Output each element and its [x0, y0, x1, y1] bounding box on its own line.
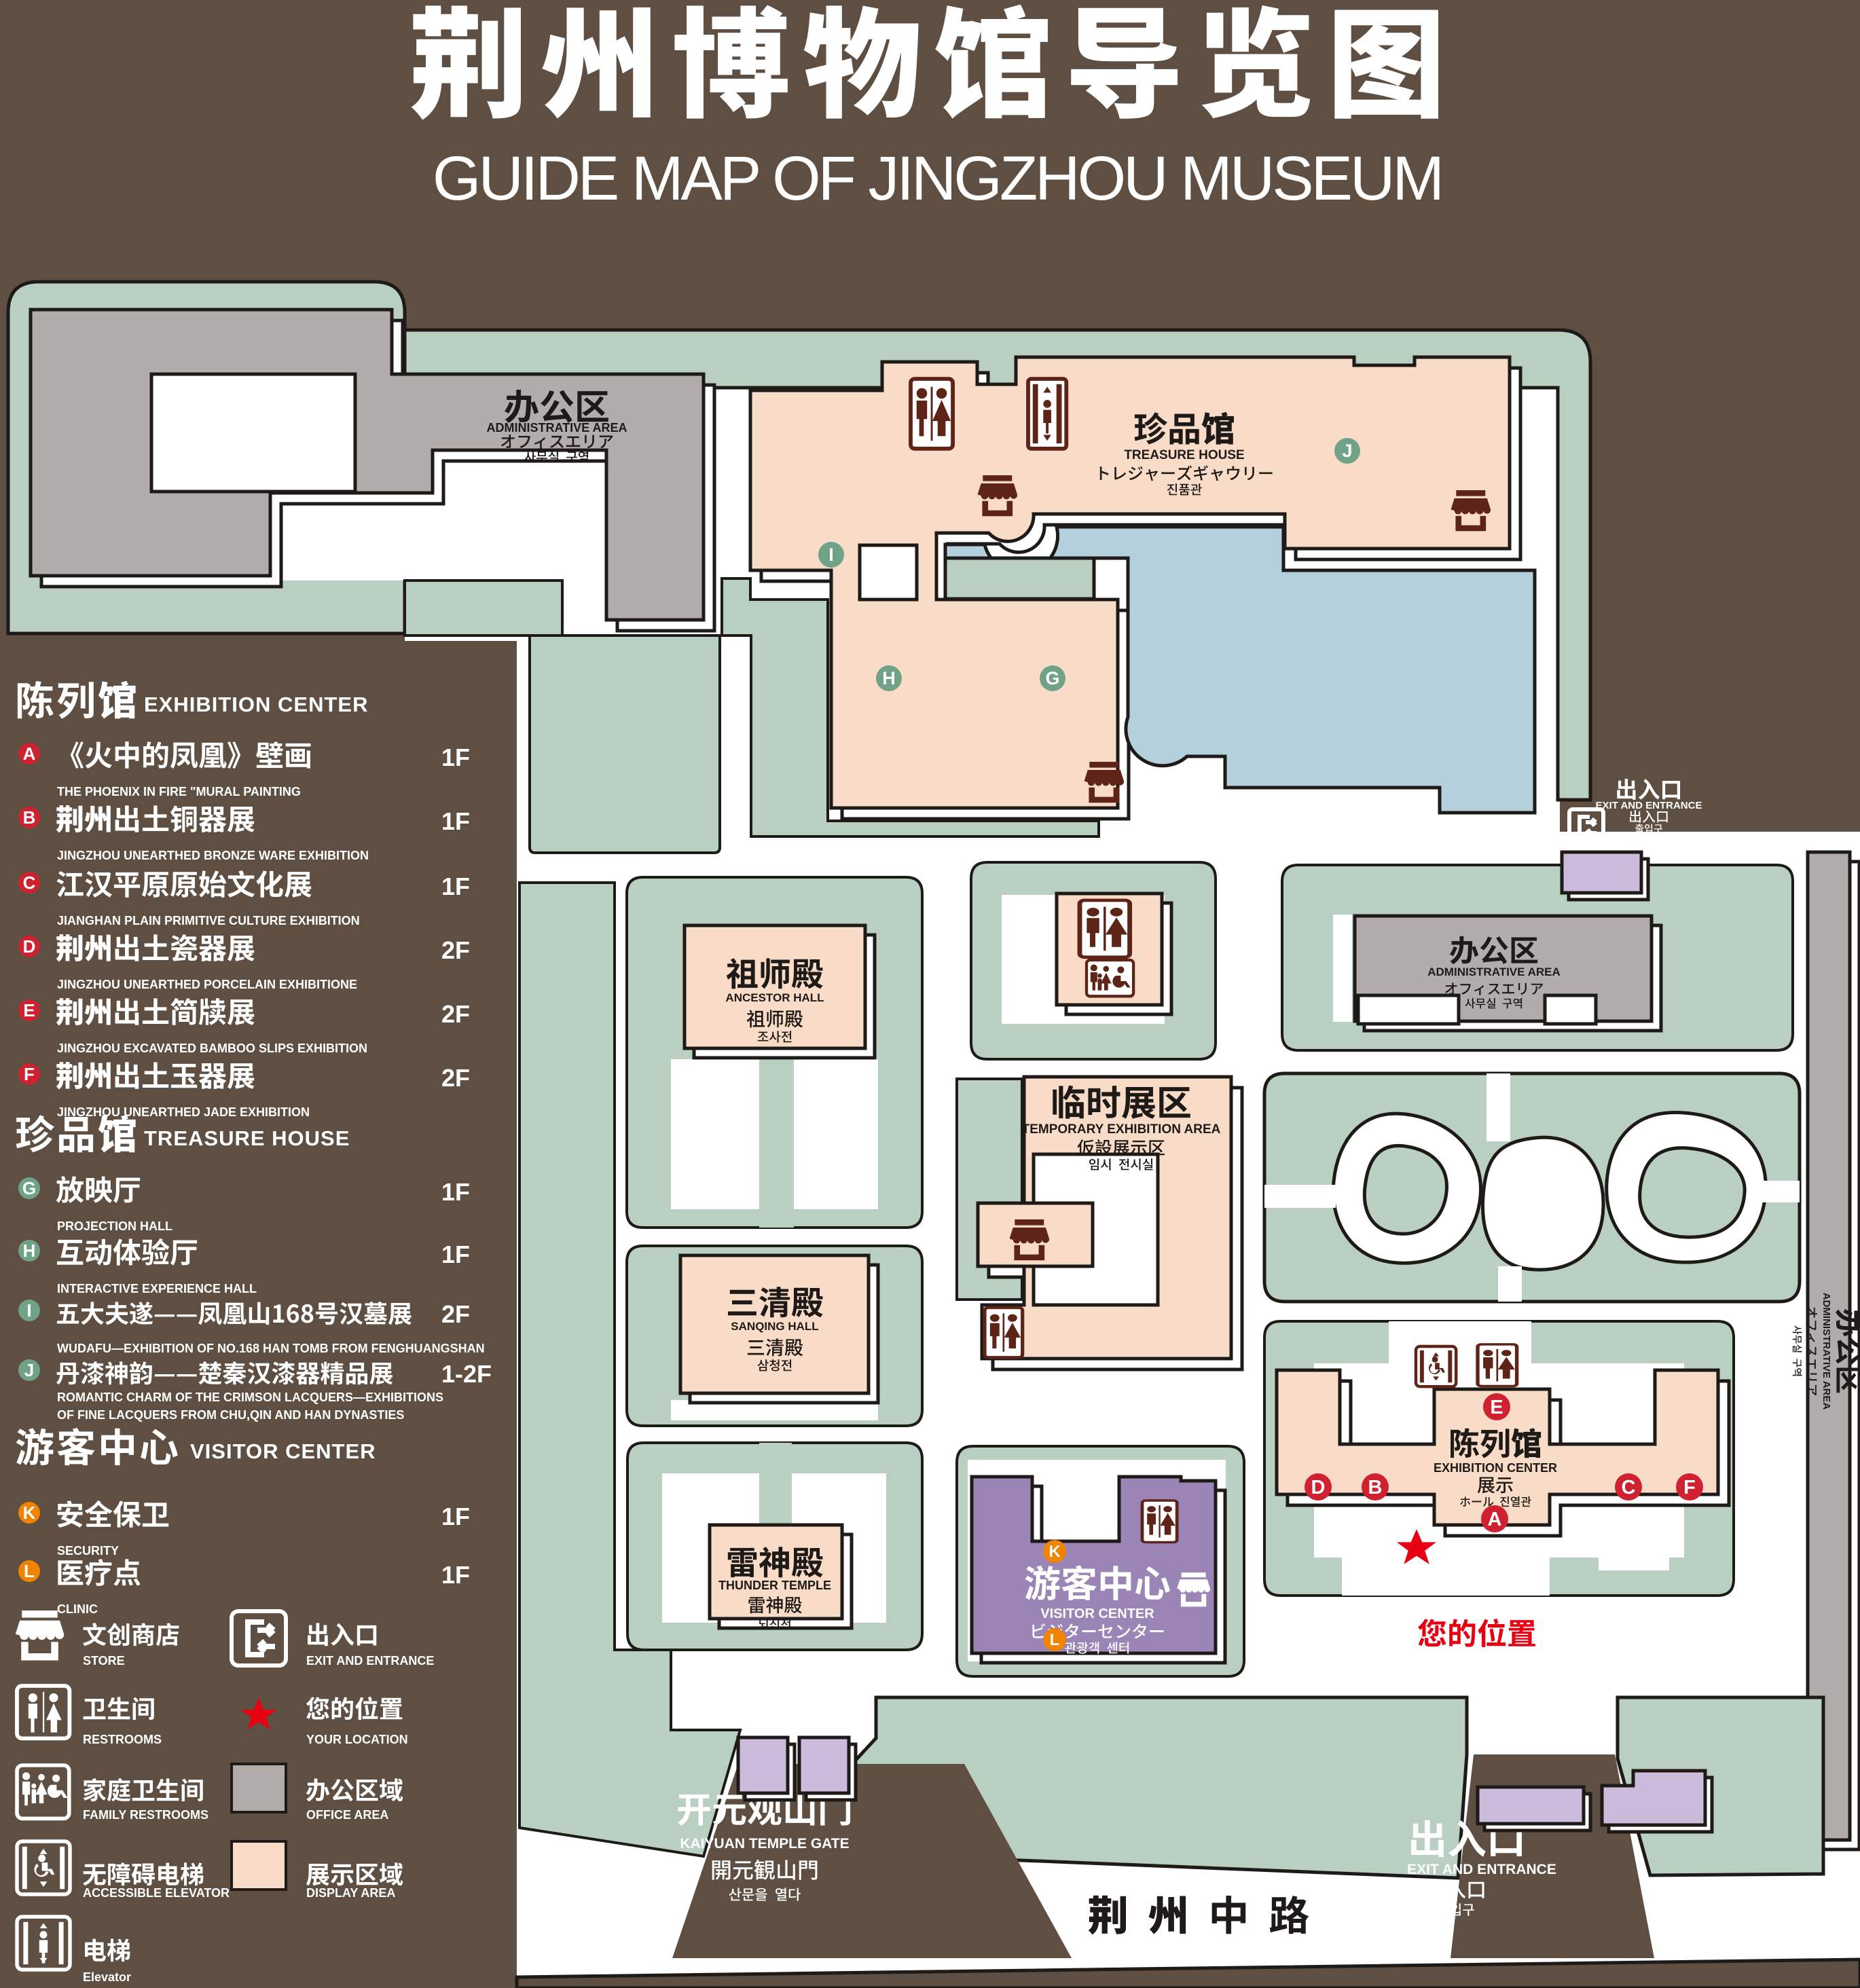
- svg-text:B: B: [23, 807, 36, 828]
- svg-text:C: C: [23, 872, 36, 893]
- svg-text:J: J: [24, 1360, 34, 1380]
- svg-text:2F: 2F: [441, 1300, 470, 1328]
- svg-text:CLINIC: CLINIC: [57, 1602, 98, 1616]
- svg-text:EXHIBITION CENTER: EXHIBITION CENTER: [144, 693, 368, 716]
- svg-text:J: J: [1342, 441, 1352, 461]
- svg-text:JINGZHOU UNEARTHED JADE EXHIBI: JINGZHOU UNEARTHED JADE EXHIBITION: [57, 1105, 310, 1119]
- svg-text:H: H: [882, 668, 896, 688]
- svg-text:WUDAFU—EXHIBITION OF NO.168 HA: WUDAFU—EXHIBITION OF NO.168 HAN TOMB FRO…: [57, 1342, 485, 1355]
- svg-text:JINGZHOU UNEARTHED PORCELAIN E: JINGZHOU UNEARTHED PORCELAIN EXHIBITIONE: [57, 978, 357, 991]
- svg-text:1-2F: 1-2F: [441, 1360, 492, 1388]
- svg-text:FAMILY RESTROOMS: FAMILY RESTROOMS: [83, 1808, 208, 1822]
- svg-text:THE PHOENIX IN FIRE "MURAL PAI: THE PHOENIX IN FIRE "MURAL PAINTING: [57, 785, 301, 798]
- svg-text:1F: 1F: [441, 807, 470, 835]
- svg-text:SECURITY: SECURITY: [57, 1544, 119, 1558]
- svg-text:ADMINISTRATIVE AREA: ADMINISTRATIVE AREA: [1821, 1293, 1832, 1410]
- svg-text:ADMINISTRATIVE AREA: ADMINISTRATIVE AREA: [1427, 965, 1561, 978]
- svg-text:I: I: [828, 545, 834, 565]
- svg-text:2F: 2F: [441, 1000, 470, 1028]
- svg-text:VISITOR CENTER: VISITOR CENTER: [190, 1439, 376, 1463]
- svg-text:2F: 2F: [441, 1064, 470, 1092]
- svg-text:OFFICE AREA: OFFICE AREA: [306, 1808, 388, 1822]
- svg-text:L: L: [1050, 1631, 1060, 1649]
- svg-text:1F: 1F: [441, 1240, 470, 1268]
- svg-text:E: E: [1490, 1397, 1503, 1418]
- svg-text:TREASURE HOUSE: TREASURE HOUSE: [144, 1126, 350, 1150]
- svg-text:STORE: STORE: [83, 1654, 125, 1668]
- svg-text:1F: 1F: [441, 743, 470, 771]
- svg-text:2F: 2F: [441, 936, 470, 964]
- svg-text:TEMPORARY EXHIBITION AREA: TEMPORARY EXHIBITION AREA: [1022, 1122, 1221, 1137]
- svg-text:OF FINE LACQUERS FROM CHU,QIN: OF FINE LACQUERS FROM CHU,QIN AND HAN DY…: [57, 1408, 404, 1422]
- svg-text:VISITOR CENTER: VISITOR CENTER: [1040, 1606, 1154, 1621]
- svg-text:DISPLAY AREA: DISPLAY AREA: [306, 1886, 395, 1900]
- svg-text:E: E: [23, 1000, 35, 1020]
- svg-text:Elevator: Elevator: [83, 1970, 131, 1984]
- svg-text:A: A: [23, 743, 36, 764]
- svg-text:ADMINISTRATIVE AREA: ADMINISTRATIVE AREA: [487, 421, 627, 435]
- svg-text:G: G: [1045, 668, 1059, 688]
- svg-text:1F: 1F: [441, 1178, 470, 1206]
- svg-text:K: K: [1048, 1543, 1061, 1561]
- svg-text:JINGZHOU EXCAVATED BAMBOO SLIP: JINGZHOU EXCAVATED BAMBOO SLIPS EXHIBITI…: [57, 1042, 367, 1055]
- svg-text:YOUR LOCATION: YOUR LOCATION: [306, 1733, 408, 1746]
- svg-text:K: K: [23, 1503, 36, 1523]
- svg-text:A: A: [1488, 1509, 1502, 1530]
- svg-text:ROMANTIC CHARM OF THE CRIMSON: ROMANTIC CHARM OF THE CRIMSON LACQUERS—E…: [57, 1391, 443, 1404]
- svg-text:GUIDE MAP OF JINGZHOU MUSEUM: GUIDE MAP OF JINGZHOU MUSEUM: [433, 144, 1442, 213]
- svg-text:JINGZHOU UNEARTHED BRONZE WARE: JINGZHOU UNEARTHED BRONZE WARE EXHIBITIO…: [57, 849, 369, 862]
- svg-text:EXHIBITION CENTER: EXHIBITION CENTER: [1434, 1461, 1557, 1475]
- svg-text:D: D: [1311, 1477, 1326, 1498]
- svg-text:C: C: [1622, 1477, 1636, 1498]
- svg-text:G: G: [22, 1178, 36, 1198]
- svg-text:D: D: [23, 936, 36, 957]
- svg-text:EXIT AND ENTRANCE: EXIT AND ENTRANCE: [1407, 1862, 1556, 1877]
- svg-text:JIANGHAN PLAIN PRIMITIVE CULTU: JIANGHAN PLAIN PRIMITIVE CULTURE EXHIBIT…: [57, 914, 360, 927]
- svg-text:L: L: [24, 1561, 35, 1581]
- svg-text:TREASURE HOUSE: TREASURE HOUSE: [1124, 448, 1244, 462]
- svg-text:ANCESTOR HALL: ANCESTOR HALL: [725, 991, 824, 1004]
- svg-text:ACCESSIBLE ELEVATOR: ACCESSIBLE ELEVATOR: [83, 1886, 230, 1900]
- svg-text:RESTROOMS: RESTROOMS: [83, 1733, 162, 1746]
- svg-text:EXIT AND ENTRANCE: EXIT AND ENTRANCE: [1596, 800, 1702, 811]
- svg-text:F: F: [24, 1064, 35, 1084]
- svg-text:H: H: [23, 1240, 36, 1261]
- svg-text:THUNDER TEMPLE: THUNDER TEMPLE: [718, 1579, 831, 1592]
- svg-text:F: F: [1683, 1477, 1696, 1498]
- svg-text:EXIT AND ENTRANCE: EXIT AND ENTRANCE: [306, 1654, 434, 1668]
- svg-text:1F: 1F: [441, 1503, 470, 1530]
- svg-text:SANQING HALL: SANQING HALL: [731, 1320, 818, 1333]
- svg-text:1F: 1F: [441, 872, 470, 900]
- svg-text:PROJECTION HALL: PROJECTION HALL: [57, 1219, 172, 1233]
- svg-text:1F: 1F: [441, 1561, 470, 1589]
- svg-text:B: B: [1368, 1477, 1383, 1498]
- svg-text:INTERACTIVE EXPERIENCE HALL: INTERACTIVE EXPERIENCE HALL: [57, 1282, 257, 1295]
- svg-text:KAIYUAN TEMPLE GATE: KAIYUAN TEMPLE GATE: [680, 1836, 849, 1852]
- svg-text:I: I: [26, 1300, 31, 1321]
